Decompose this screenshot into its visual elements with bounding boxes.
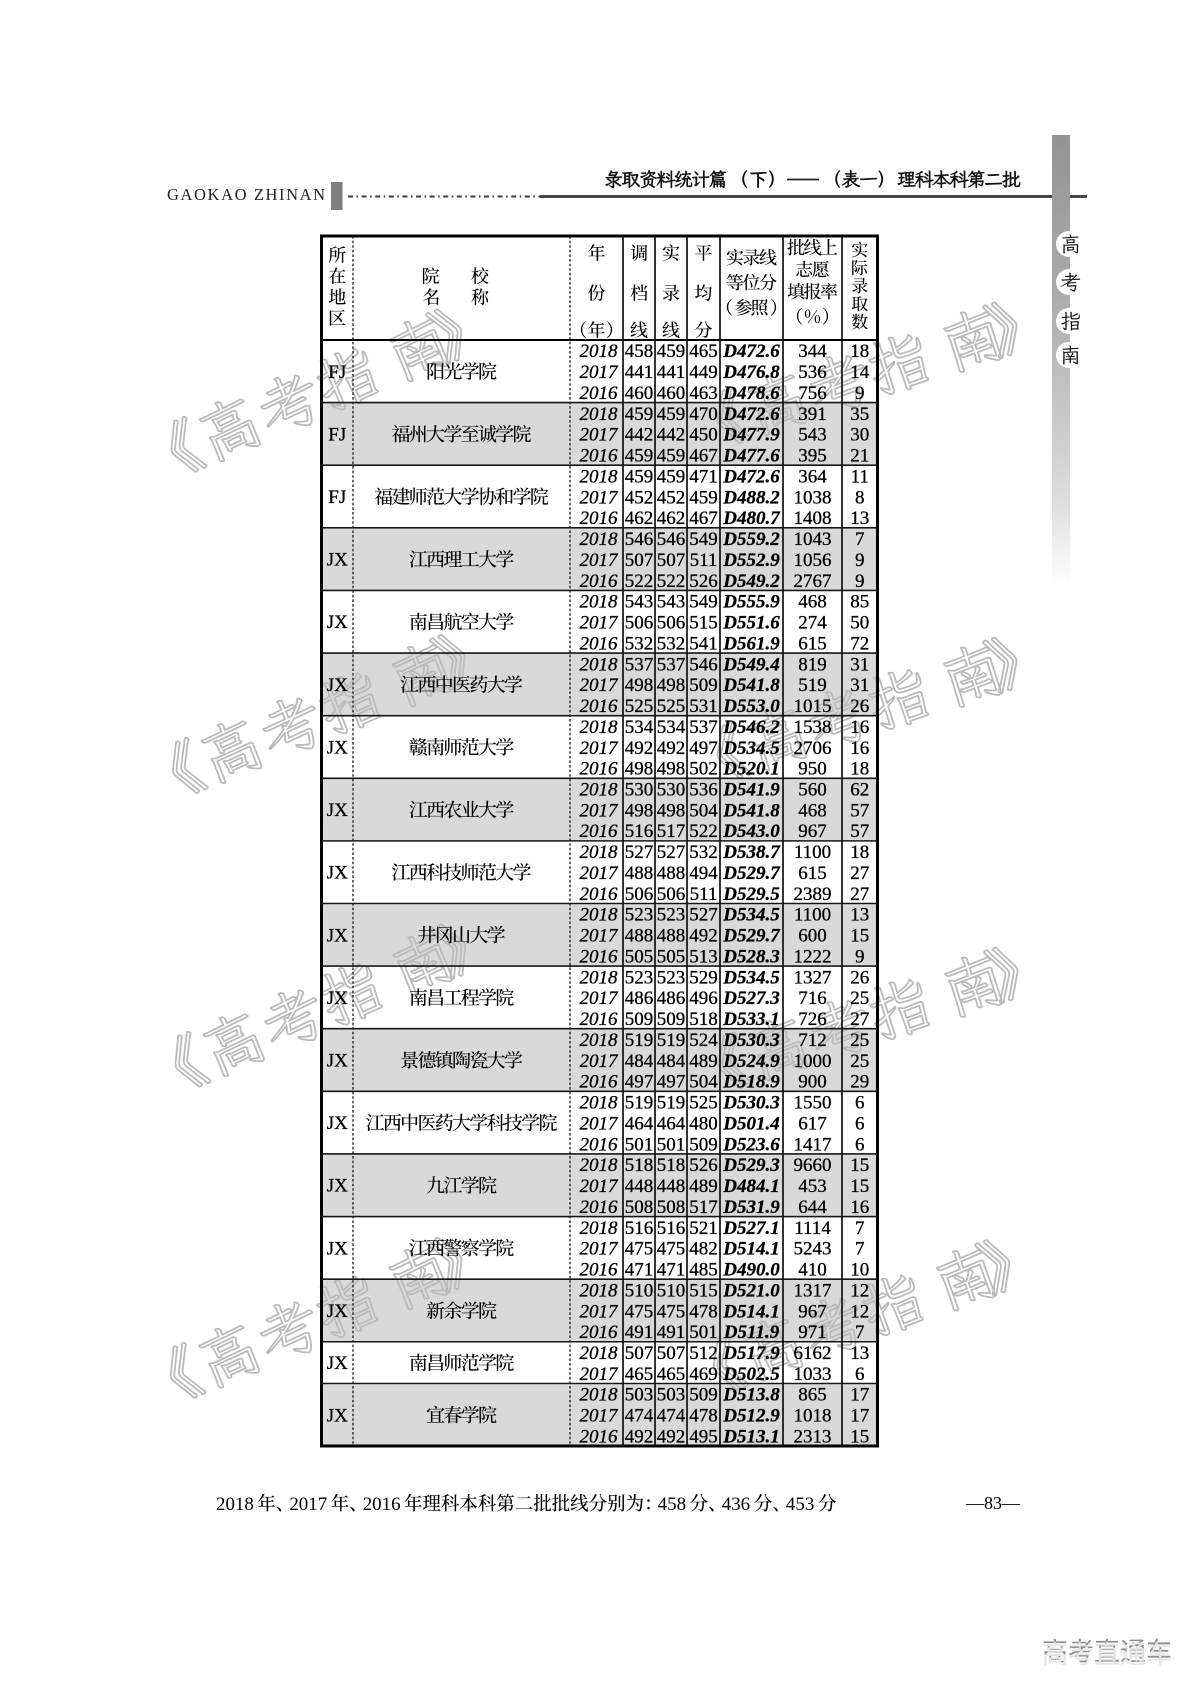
svg-text:525: 525 [657,696,686,717]
svg-text:441: 441 [625,362,654,383]
svg-text:410: 410 [798,1260,827,1281]
svg-text:D529.3: D529.3 [722,1155,779,1176]
svg-text:2018: 2018 [580,842,619,863]
svg-text:756: 756 [798,383,827,404]
svg-text:JX: JX [327,1353,348,1374]
svg-text:464: 464 [625,1113,654,1134]
svg-text:2016: 2016 [580,446,619,467]
svg-text:467: 467 [689,508,718,529]
svg-text:503: 503 [625,1385,654,1406]
svg-text:2016: 2016 [580,571,619,592]
svg-text:8: 8 [855,487,865,508]
svg-text:459: 459 [625,404,654,425]
svg-text:465: 465 [625,1364,654,1385]
svg-text:506: 506 [625,613,654,634]
svg-text:515: 515 [689,1280,718,1301]
svg-text:536: 536 [798,362,827,383]
svg-text:452: 452 [657,487,686,508]
svg-text:9660: 9660 [794,1155,832,1176]
svg-text:1550: 1550 [794,1093,832,1114]
svg-text:D552.9: D552.9 [722,550,780,571]
svg-text:2016: 2016 [580,759,619,780]
svg-text:2016: 2016 [580,1072,619,1093]
svg-text:62: 62 [850,780,869,801]
svg-text:509: 509 [689,675,718,696]
svg-text:471: 471 [689,466,718,487]
svg-text:JX: JX [327,1301,348,1322]
svg-text:D520.1: D520.1 [722,759,779,780]
svg-text:450: 450 [689,425,718,446]
svg-text:523: 523 [657,905,686,926]
svg-text:6: 6 [855,1093,865,1114]
svg-text:523: 523 [625,905,654,926]
svg-text:492: 492 [657,1426,686,1447]
svg-text:519: 519 [657,1030,686,1051]
svg-text:507: 507 [657,1343,686,1364]
svg-text:527: 527 [689,905,718,926]
svg-text:31: 31 [850,654,869,675]
svg-text:7: 7 [855,1218,865,1239]
svg-text:537: 537 [657,654,686,675]
svg-text:344: 344 [798,341,827,362]
svg-text:27: 27 [850,884,869,905]
svg-text:1538: 1538 [794,717,832,738]
svg-text:549: 549 [689,529,718,550]
svg-text:D528.3: D528.3 [722,946,779,967]
svg-text:525: 525 [625,696,654,717]
svg-text:467: 467 [689,446,718,467]
svg-text:D477.9: D477.9 [722,425,780,446]
svg-text:2017: 2017 [580,863,620,884]
svg-text:26: 26 [850,967,869,988]
svg-text:72: 72 [850,633,869,654]
svg-text:448: 448 [657,1176,686,1197]
svg-text:2016: 2016 [580,1009,619,1030]
svg-text:13: 13 [850,1343,869,1364]
svg-text:D529.5: D529.5 [722,884,780,905]
svg-text:2017: 2017 [580,1364,620,1385]
svg-text:2018: 2018 [580,466,619,487]
svg-text:D523.6: D523.6 [722,1134,780,1155]
svg-text:30: 30 [850,425,869,446]
svg-text:D559.2: D559.2 [722,529,780,550]
svg-text:2016: 2016 [580,1322,619,1343]
svg-text:1317: 1317 [794,1280,832,1301]
svg-text:17: 17 [850,1406,869,1427]
svg-text:459: 459 [657,466,686,487]
svg-text:FJ: FJ [328,362,346,383]
svg-text:D538.7: D538.7 [722,842,781,863]
svg-text:459: 459 [657,341,686,362]
svg-text:57: 57 [850,821,869,842]
svg-text:1000: 1000 [794,1051,832,1072]
svg-text:491: 491 [625,1322,654,1343]
svg-text:2017: 2017 [580,425,620,446]
svg-text:2017: 2017 [580,1301,620,1322]
svg-text:D529.7: D529.7 [722,863,781,884]
svg-text:9: 9 [855,571,865,592]
svg-text:2018: 2018 [580,1030,619,1051]
svg-text:488: 488 [625,926,654,947]
svg-text:615: 615 [798,863,827,884]
svg-text:D551.6: D551.6 [722,613,780,634]
svg-text:D472.6: D472.6 [722,466,780,487]
svg-text:971: 971 [798,1322,827,1343]
svg-text:468: 468 [798,800,827,821]
svg-text:2016: 2016 [580,1426,619,1447]
svg-text:478: 478 [689,1406,718,1427]
svg-text:2017: 2017 [580,613,620,634]
svg-text:510: 510 [657,1280,686,1301]
svg-text:527: 527 [625,842,654,863]
svg-text:506: 506 [657,884,686,905]
svg-text:458: 458 [658,1494,686,1515]
svg-text:1222: 1222 [794,946,832,967]
svg-text:442: 442 [657,425,686,446]
svg-text:471: 471 [657,1260,686,1281]
svg-text:391: 391 [798,404,827,425]
svg-text:JX: JX [327,863,348,884]
svg-text:517: 517 [689,1197,718,1218]
svg-text:523: 523 [625,967,654,988]
svg-text:475: 475 [625,1239,654,1260]
svg-text:526: 526 [689,1155,718,1176]
svg-text:D530.3: D530.3 [722,1030,779,1051]
svg-text:516: 516 [625,1218,654,1239]
svg-text:459: 459 [625,466,654,487]
svg-text:492: 492 [625,1426,654,1447]
svg-text:495: 495 [689,1426,718,1447]
svg-text:9: 9 [855,946,865,967]
svg-text:18: 18 [850,341,869,362]
svg-text:2706: 2706 [794,738,832,759]
svg-text:7: 7 [855,1322,865,1343]
svg-text:2018: 2018 [580,717,619,738]
svg-text:15: 15 [850,926,869,947]
svg-text:532: 532 [689,842,718,863]
svg-text:D555.9: D555.9 [722,592,780,613]
svg-text:1100: 1100 [794,842,831,863]
svg-text:463: 463 [689,383,718,404]
svg-text:458: 458 [625,341,654,362]
svg-text:D501.4: D501.4 [722,1113,779,1134]
svg-text:502: 502 [689,759,718,780]
svg-text:523: 523 [657,967,686,988]
svg-text:D531.9: D531.9 [722,1197,780,1218]
svg-text:27: 27 [850,1009,869,1030]
svg-text:486: 486 [657,988,686,1009]
svg-text:498: 498 [625,675,654,696]
svg-text:541: 541 [689,633,718,654]
svg-text:JX: JX [327,1113,348,1134]
svg-text:475: 475 [625,1301,654,1322]
svg-text:497: 497 [657,1072,686,1093]
svg-text:464: 464 [657,1113,686,1134]
svg-text:475: 475 [657,1301,686,1322]
svg-text:459: 459 [689,487,718,508]
svg-text:644: 644 [798,1197,827,1218]
svg-text:2018: 2018 [580,1218,619,1239]
svg-text:D534.5: D534.5 [722,738,780,759]
svg-text:2018: 2018 [580,654,619,675]
svg-text:486: 486 [625,988,654,1009]
svg-text:516: 516 [657,1218,686,1239]
svg-text:452: 452 [625,487,654,508]
svg-text:515: 515 [689,613,718,634]
svg-text:11: 11 [851,466,869,487]
svg-text:2016: 2016 [580,946,619,967]
svg-text:21: 21 [850,446,869,467]
svg-text:2017: 2017 [580,1406,620,1427]
svg-text:511: 511 [690,884,718,905]
svg-text:449: 449 [689,362,718,383]
svg-text:482: 482 [689,1239,718,1260]
svg-text:D512.9: D512.9 [722,1406,780,1427]
svg-text:494: 494 [689,863,718,884]
svg-text:526: 526 [689,571,718,592]
svg-text:509: 509 [689,1134,718,1155]
svg-text:D502.5: D502.5 [722,1364,780,1385]
svg-text:462: 462 [657,508,686,529]
svg-text:D477.6: D477.6 [722,446,780,467]
svg-text:503: 503 [657,1385,686,1406]
svg-text:2016: 2016 [580,508,619,529]
svg-text:D478.6: D478.6 [722,383,780,404]
svg-text:498: 498 [625,759,654,780]
svg-text:2016: 2016 [580,633,619,654]
svg-text:546: 546 [625,529,654,550]
svg-text:530: 530 [657,780,686,801]
svg-text:29: 29 [850,1072,869,1093]
svg-text:JX: JX [327,988,348,1009]
svg-text:D484.1: D484.1 [722,1176,779,1197]
svg-text:2017: 2017 [580,675,620,696]
svg-text:2016: 2016 [580,696,619,717]
svg-text:531: 531 [689,696,718,717]
svg-text:12: 12 [850,1280,869,1301]
svg-text:967: 967 [798,1301,827,1322]
svg-text:2017: 2017 [580,738,620,759]
svg-text:2018: 2018 [580,1280,619,1301]
svg-text:2017: 2017 [580,550,620,571]
svg-text:10: 10 [850,1260,869,1281]
svg-text:459: 459 [657,404,686,425]
svg-text:1038: 1038 [794,487,832,508]
svg-text:522: 522 [625,571,654,592]
svg-text:509: 509 [625,1009,654,1030]
svg-text:615: 615 [798,633,827,654]
svg-text:2017: 2017 [580,362,620,383]
svg-text:2767: 2767 [794,571,832,592]
svg-text:25: 25 [850,1051,869,1072]
svg-text:2018: 2018 [580,780,619,801]
svg-text:498: 498 [657,800,686,821]
svg-text:465: 465 [657,1364,686,1385]
svg-text:507: 507 [657,550,686,571]
svg-text:2017: 2017 [580,487,620,508]
svg-text:6: 6 [855,1364,865,1385]
svg-text:27: 27 [850,863,869,884]
svg-text:2018: 2018 [216,1494,254,1515]
svg-text:D533.1: D533.1 [722,1009,779,1030]
svg-text:525: 525 [689,1093,718,1114]
svg-text:600: 600 [798,926,827,947]
svg-text:474: 474 [657,1406,686,1427]
svg-text:13: 13 [850,508,869,529]
svg-text:519: 519 [625,1030,654,1051]
svg-text:JX: JX [327,737,348,758]
svg-text:5243: 5243 [794,1239,832,1260]
svg-text:364: 364 [798,466,827,487]
svg-text:532: 532 [625,633,654,654]
svg-text:819: 819 [798,654,827,675]
svg-text:2016: 2016 [580,1260,619,1281]
svg-text:460: 460 [657,383,686,404]
svg-text:D472.6: D472.6 [722,341,780,362]
svg-text:967: 967 [798,821,827,842]
svg-text:7: 7 [855,529,865,550]
svg-text:2018: 2018 [580,967,619,988]
svg-text:519: 519 [657,1093,686,1114]
svg-text:2018: 2018 [580,1385,619,1406]
svg-text:950: 950 [798,759,827,780]
svg-text:442: 442 [625,425,654,446]
svg-text:D524.9: D524.9 [722,1051,780,1072]
svg-text:468: 468 [798,592,827,613]
svg-text:2017: 2017 [580,800,620,821]
svg-text:543: 543 [625,592,654,613]
svg-text:518: 518 [657,1155,686,1176]
svg-text:504: 504 [689,1072,718,1093]
svg-text:FJ: FJ [328,424,346,445]
svg-text:488: 488 [625,863,654,884]
svg-text:459: 459 [657,446,686,467]
svg-text:D534.5: D534.5 [722,967,780,988]
svg-text:492: 492 [625,738,654,759]
svg-text:JX: JX [327,1176,348,1197]
svg-text:—83—: —83— [965,1493,1021,1513]
svg-text:D514.1: D514.1 [722,1301,779,1322]
svg-text:475: 475 [657,1239,686,1260]
svg-text:501: 501 [625,1134,654,1155]
svg-text:D553.0: D553.0 [722,696,780,717]
svg-text:489: 489 [689,1176,718,1197]
svg-text:1043: 1043 [794,529,832,550]
svg-text:2016: 2016 [580,884,619,905]
svg-text:25: 25 [850,1030,869,1051]
svg-text:2017: 2017 [580,1113,620,1134]
svg-text:D534.5: D534.5 [722,905,780,926]
svg-text:85: 85 [850,592,869,613]
svg-text:505: 505 [657,946,686,967]
svg-text:510: 510 [625,1280,654,1301]
svg-text:522: 522 [689,821,718,842]
svg-text:507: 507 [625,1343,654,1364]
svg-text:395: 395 [798,446,827,467]
svg-text:512: 512 [689,1343,718,1364]
svg-text:441: 441 [657,362,686,383]
svg-text:504: 504 [689,800,718,821]
svg-text:6: 6 [855,1113,865,1134]
svg-text:D549.2: D549.2 [722,571,780,592]
svg-text:522: 522 [657,571,686,592]
svg-text:716: 716 [798,988,827,1009]
svg-text:453: 453 [798,1176,827,1197]
svg-text:517: 517 [657,821,686,842]
svg-text:16: 16 [850,1197,869,1218]
svg-text:25: 25 [850,988,869,1009]
svg-text:1100: 1100 [794,905,831,926]
svg-text:497: 497 [625,1072,654,1093]
svg-text:D490.0: D490.0 [722,1260,780,1281]
svg-text:469: 469 [689,1364,718,1385]
svg-text:JX: JX [327,1051,348,1072]
svg-text:518: 518 [689,1009,718,1030]
svg-text:D514.1: D514.1 [722,1239,779,1260]
svg-text:2017: 2017 [580,1051,620,1072]
svg-text:506: 506 [657,613,686,634]
svg-text:524: 524 [689,1030,718,1051]
svg-text:D472.6: D472.6 [722,404,780,425]
svg-text:D561.9: D561.9 [722,633,780,654]
svg-text:JX: JX [327,800,348,821]
svg-text:546: 546 [657,529,686,550]
svg-text:518: 518 [625,1155,654,1176]
svg-text:9: 9 [855,550,865,571]
svg-text:D530.3: D530.3 [722,1093,779,1114]
svg-text:534: 534 [657,717,686,738]
svg-text:459: 459 [625,446,654,467]
svg-text:2389: 2389 [794,884,832,905]
svg-text:497: 497 [689,738,718,759]
svg-text:2016: 2016 [580,383,619,404]
svg-text:521: 521 [689,1218,718,1239]
svg-text:478: 478 [689,1301,718,1322]
svg-text:9: 9 [855,383,865,404]
svg-text:FJ: FJ [328,487,346,508]
svg-text:35: 35 [850,404,869,425]
svg-text:D527.3: D527.3 [722,988,779,1009]
svg-text:D541.8: D541.8 [722,675,780,696]
svg-text:D513.1: D513.1 [722,1426,779,1447]
svg-text:516: 516 [625,821,654,842]
svg-text:13: 13 [850,905,869,926]
svg-text:511: 511 [690,550,718,571]
svg-text:617: 617 [798,1113,827,1134]
svg-text:498: 498 [657,759,686,780]
svg-text:1417: 1417 [794,1134,832,1155]
svg-text:537: 537 [689,717,718,738]
svg-text:492: 492 [657,738,686,759]
svg-text:501: 501 [657,1134,686,1155]
svg-text:506: 506 [625,884,654,905]
svg-text:JX: JX [327,1405,348,1426]
svg-text:480: 480 [689,1113,718,1134]
svg-text:529: 529 [689,967,718,988]
svg-text:274: 274 [798,613,827,634]
svg-text:530: 530 [625,780,654,801]
svg-text:462: 462 [625,508,654,529]
svg-text:2313: 2313 [794,1426,832,1447]
svg-text:D476.8: D476.8 [722,362,780,383]
svg-text:2016: 2016 [580,1134,619,1155]
svg-text:D511.9: D511.9 [723,1322,780,1343]
svg-text:485: 485 [689,1260,718,1281]
svg-text:509: 509 [689,1385,718,1406]
svg-text:488: 488 [657,863,686,884]
svg-text:501: 501 [689,1322,718,1343]
svg-text:2018: 2018 [580,1093,619,1114]
